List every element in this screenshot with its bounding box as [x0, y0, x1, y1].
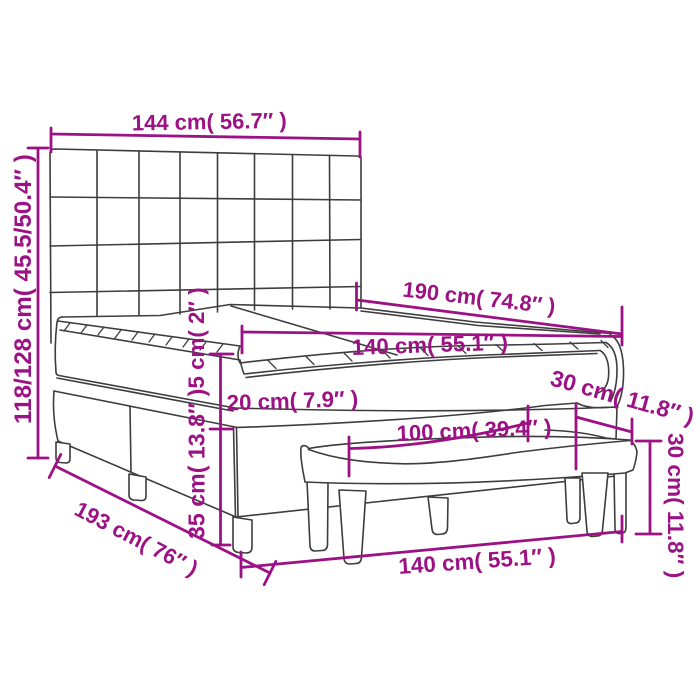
- svg-text:20 cm( 7.9″ ): 20 cm( 7.9″ ): [226, 386, 358, 416]
- svg-text:5 cm( 2″ ): 5 cm( 2″ ): [184, 287, 209, 388]
- svg-text:190 cm( 74.8″ ): 190 cm( 74.8″ ): [401, 277, 556, 319]
- svg-text:140 cm( 55.1″ ): 140 cm( 55.1″ ): [398, 543, 557, 579]
- svg-text:118/128 cm( 45.5/50.4″ ): 118/128 cm( 45.5/50.4″ ): [10, 154, 37, 424]
- svg-text:35 cm( 13.8″ ): 35 cm( 13.8″ ): [184, 389, 210, 539]
- svg-text:144 cm( 56.7″ ): 144 cm( 56.7″ ): [132, 108, 287, 136]
- svg-text:193 cm( 76″ ): 193 cm( 76″ ): [71, 496, 203, 581]
- svg-text:30 cm( 11.8″ ): 30 cm( 11.8″ ): [548, 365, 697, 430]
- svg-text:30 cm( 11.8″ ): 30 cm( 11.8″ ): [663, 433, 688, 578]
